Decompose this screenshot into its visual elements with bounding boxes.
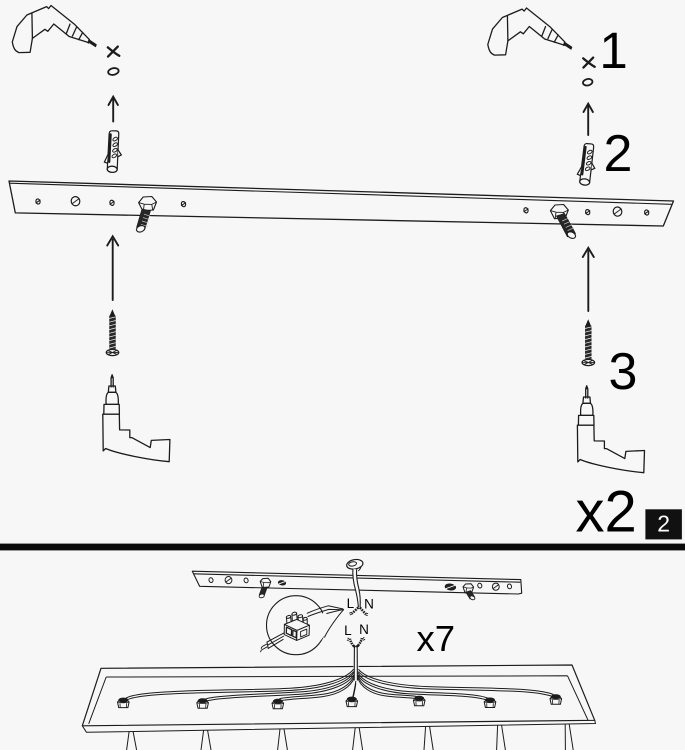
svg-text:L: L [347, 596, 355, 611]
svg-text:N: N [364, 597, 374, 612]
svg-text:2: 2 [604, 125, 633, 183]
svg-text:L: L [344, 623, 352, 638]
svg-text:x7: x7 [417, 618, 456, 659]
svg-text:N: N [359, 622, 369, 637]
svg-text:x2: x2 [576, 480, 637, 545]
svg-text:2: 2 [657, 510, 670, 536]
svg-text:3: 3 [609, 343, 638, 401]
svg-text:1: 1 [599, 22, 627, 79]
